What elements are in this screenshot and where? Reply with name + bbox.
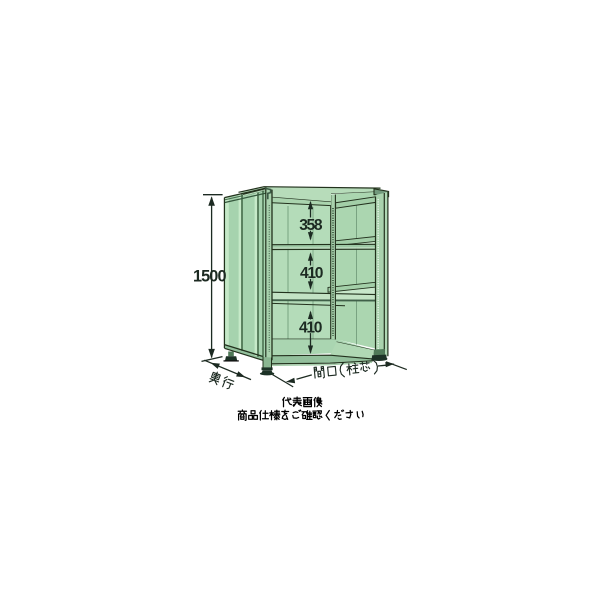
svg-text:410: 410 — [299, 319, 323, 336]
svg-text:1500: 1500 — [193, 267, 226, 285]
svg-text:358: 358 — [299, 217, 323, 234]
svg-text:410: 410 — [300, 265, 324, 282]
